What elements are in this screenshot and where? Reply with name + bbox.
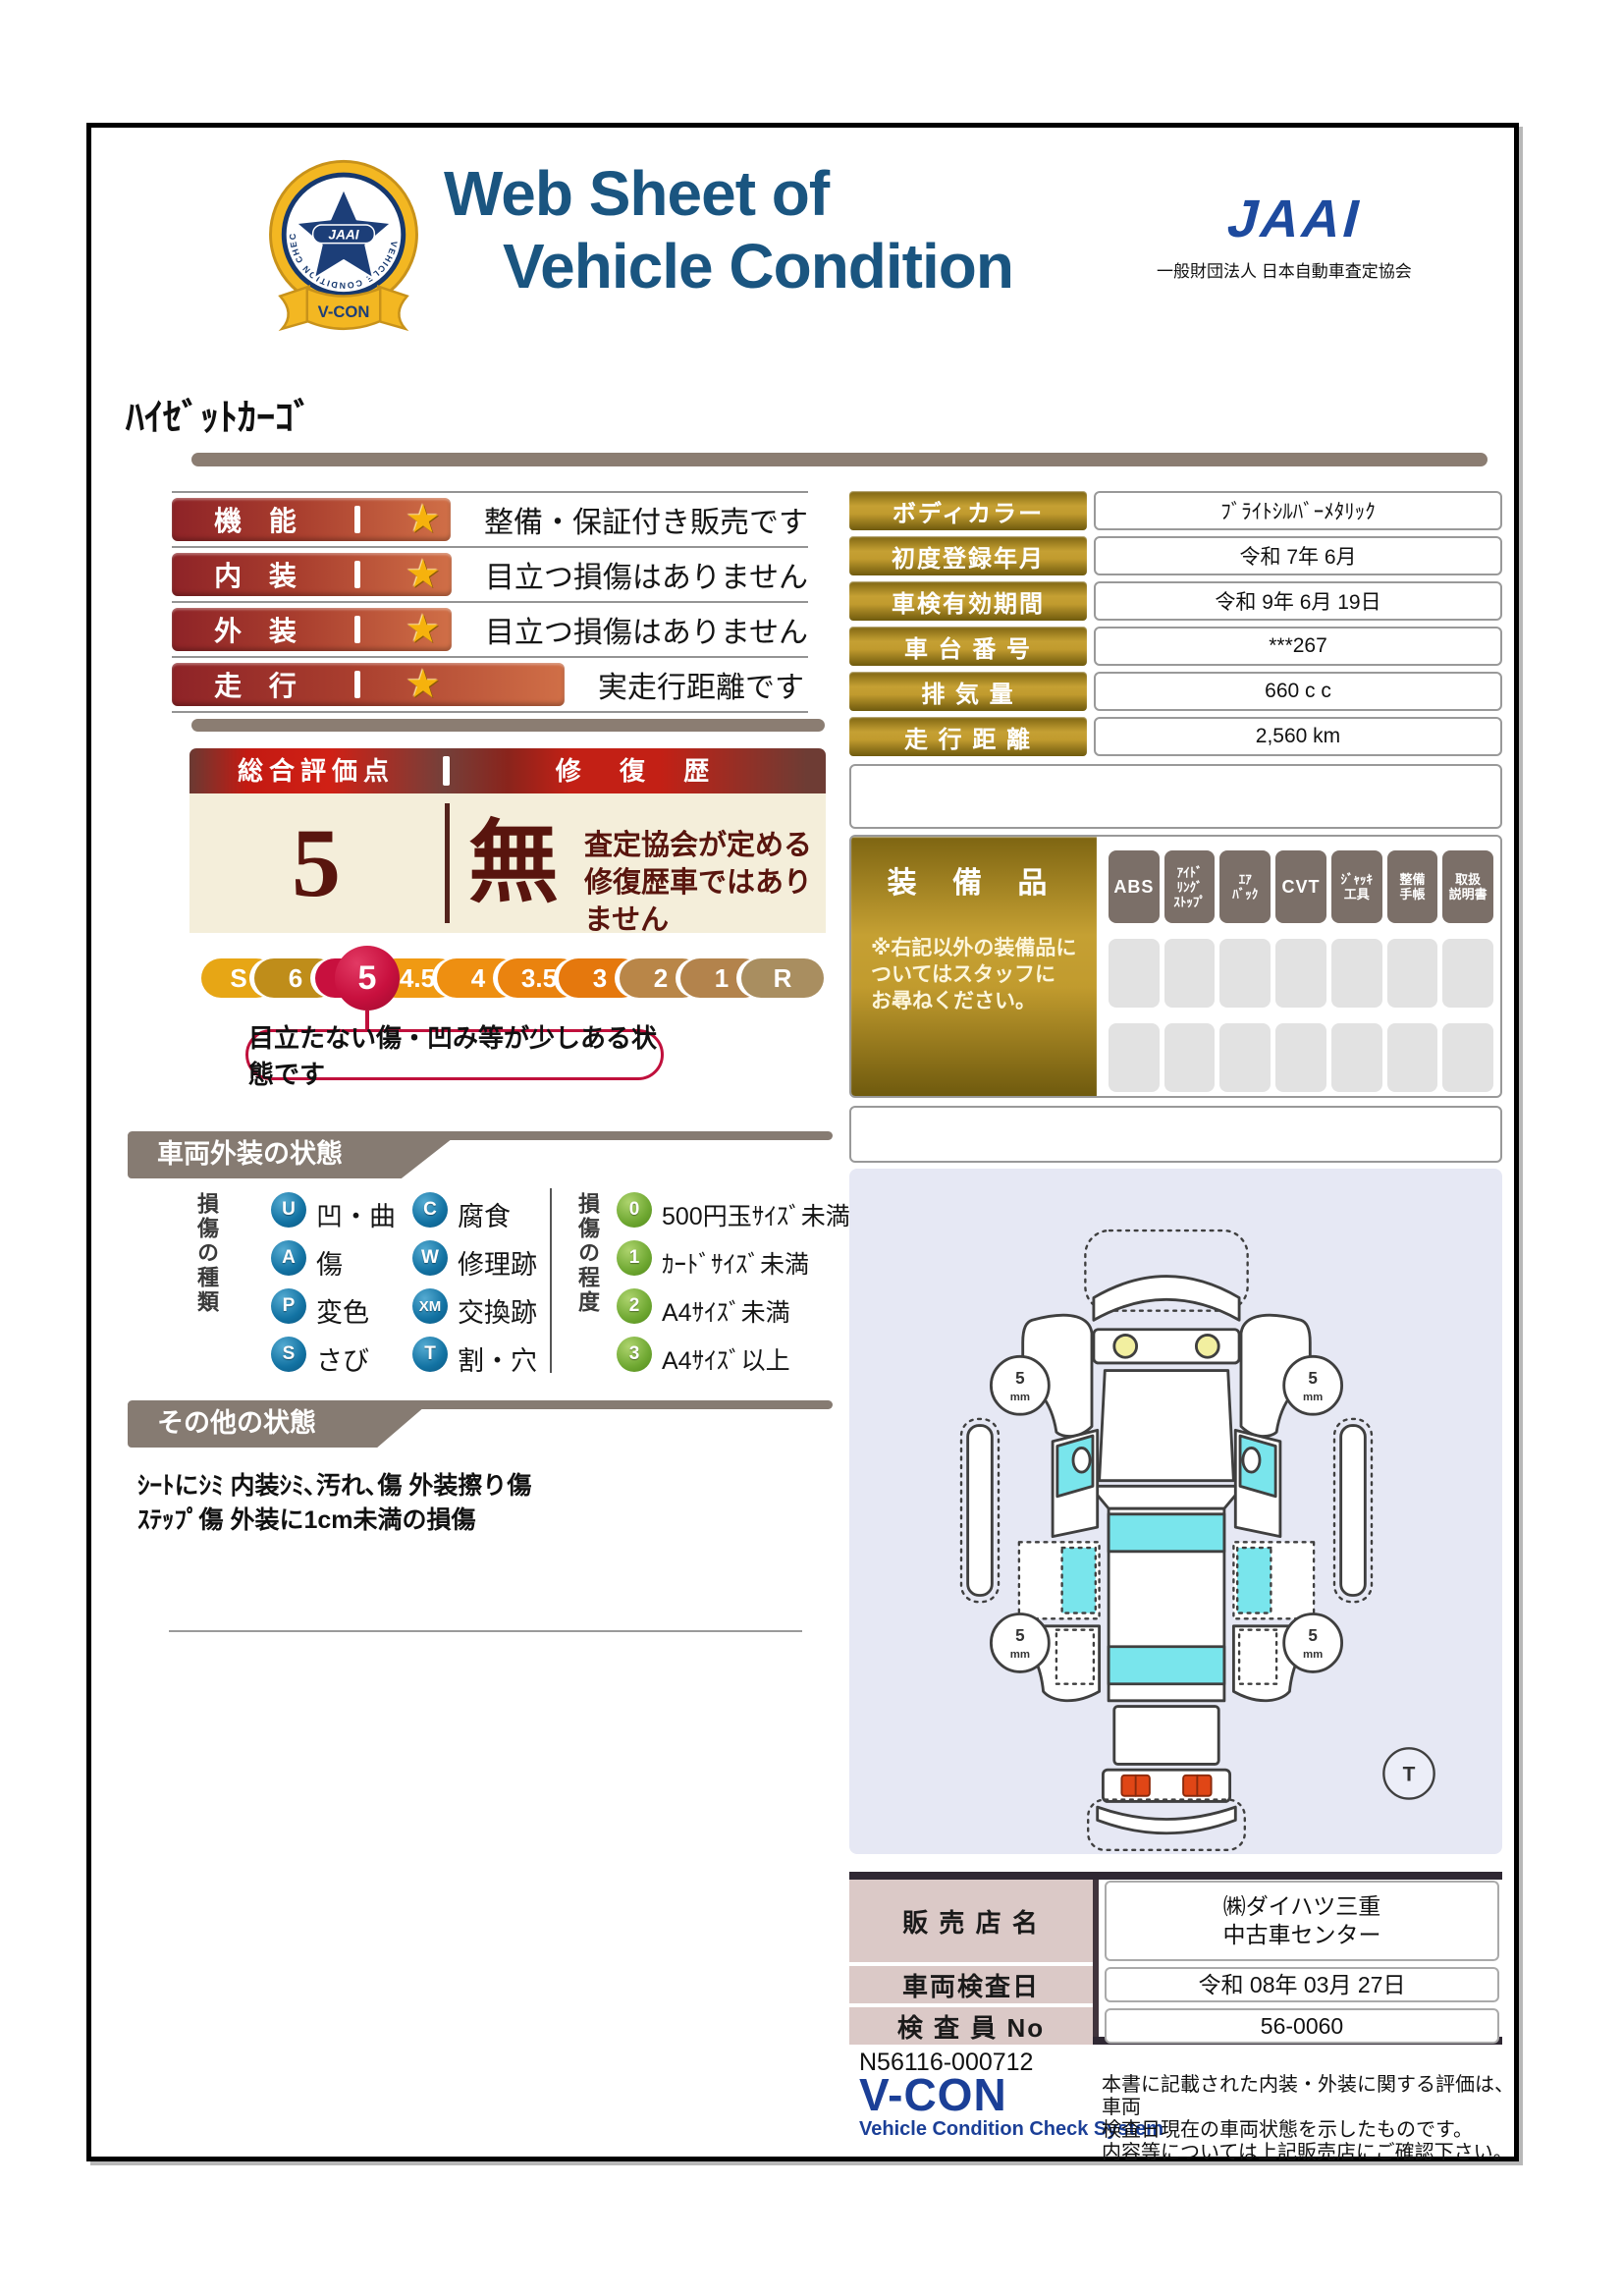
grade-scale: S 6 5 4.5 4 3.5 3 2 1 R <box>201 958 830 998</box>
dealer-label: 車両検査日 <box>849 1966 1093 2003</box>
rear-bumper <box>1098 1807 1236 1833</box>
info-row-displacement: 排 気 量 660 c c <box>849 672 1502 711</box>
info-label: 走 行 距 離 <box>849 717 1087 756</box>
info-row-first-registration: 初度登録年月 令和 7年 6月 <box>849 536 1502 575</box>
overall-score: 5 <box>189 793 443 933</box>
tire-depth-unit: mm <box>1303 1649 1323 1661</box>
degree-code-icon: 3 <box>617 1337 652 1372</box>
grade-callout: 目立たない傷・凹み等が少しある状態です <box>245 1029 664 1080</box>
tire-depth: 5 <box>1308 1626 1318 1645</box>
damage-type-name: 割・穴 <box>458 1339 537 1378</box>
damage-degree-row: 1 ｶｰﾄﾞｻｲｽﾞ未満 <box>617 1240 852 1280</box>
damage-code-icon: XM <box>412 1288 448 1324</box>
damage-code-icon: C <box>412 1192 448 1228</box>
equipment-label-panel: 装 備 品 ※右記以外の装備品に ついてはスタッフに お尋ねください。 <box>851 837 1097 1096</box>
star-icon: ★ <box>406 555 441 594</box>
rear-window-band <box>1109 1647 1224 1684</box>
rating-row-mileage: 走 行 ★ 実走行距離です <box>172 656 808 713</box>
badge-name-text: V-CON <box>318 302 370 321</box>
degree-code-icon: 0 <box>617 1192 652 1228</box>
cowl-panel <box>1090 1486 1243 1508</box>
windshield <box>1100 1371 1234 1481</box>
dealer-label: 検 査 員 No <box>849 2007 1093 2045</box>
info-value: 2,560 km <box>1094 717 1502 756</box>
separator-bar-icon <box>354 671 360 698</box>
selected-grade-marker: 5 <box>335 946 400 1011</box>
degree-code-icon: 2 <box>617 1288 652 1324</box>
rating-pill: 走 行 ★ <box>172 663 565 706</box>
damage-code-icon: W <box>412 1240 448 1276</box>
info-value: ﾌﾞﾗｲﾄｼﾙﾊﾞｰﾒﾀﾘｯｸ <box>1094 491 1502 530</box>
t-mark: T <box>1403 1764 1416 1786</box>
section-title: その他の状態 <box>128 1400 432 1448</box>
star-icon: ★ <box>406 665 441 704</box>
info-value: 令和 9年 6月 19日 <box>1094 581 1502 621</box>
equipment-badge: 整備 手帳 <box>1387 850 1438 923</box>
dealer-value: ㈱ダイハツ三重 中古車センター <box>1105 1881 1499 1961</box>
degree-name: 500円玉ｻｲｽﾞ未満 <box>662 1197 850 1232</box>
header-divider <box>443 756 450 786</box>
tire-depth-unit: mm <box>1010 1392 1030 1403</box>
equipment-badges: ABS ｱｲﾄﾞ ﾘﾝｸﾞ ｽﾄｯﾌﾟ ｴｱ ﾊﾞｯｸ CVT ｼﾞｬｯｷ 工具… <box>1109 850 1493 923</box>
badge-org-text: JAAI <box>328 228 359 243</box>
overall-header: 総合評価点 修 復 歴 <box>189 748 826 793</box>
sheet-title-line1: Web Sheet of <box>444 157 829 230</box>
info-row-mileage: 走 行 距 離 2,560 km <box>849 717 1502 756</box>
equipment-title: 装 備 品 <box>851 858 1097 902</box>
rating-comment: 目立つ損傷はありません <box>485 553 808 596</box>
divider-rule <box>191 719 825 732</box>
info-value: 令和 7年 6月 <box>1094 536 1502 575</box>
vehicle-condition-sheet: VEHICLE CONDITION CHECK SYSTEM JAAI V-CO… <box>0 0 1623 2296</box>
rear-door <box>1114 1707 1218 1765</box>
sliding-door-window <box>1062 1548 1096 1613</box>
damage-type-name: 修理跡 <box>458 1243 537 1282</box>
equipment-empty-row <box>1109 1023 1493 1092</box>
empty-box <box>849 1106 1502 1163</box>
damage-code-icon: A <box>271 1240 306 1276</box>
damage-type-name: 凹・曲 <box>316 1195 396 1233</box>
sheet-title-line2: Vehicle Condition <box>503 230 1013 302</box>
headlight-left <box>1114 1335 1137 1357</box>
dealer-value: 令和 08年 03月 27日 <box>1105 1967 1499 2002</box>
info-label: 車 台 番 号 <box>849 627 1087 666</box>
jaai-logo: JAAI <box>1221 189 1369 249</box>
divider-rule <box>191 453 1488 466</box>
info-label: 排 気 量 <box>849 672 1087 711</box>
damage-type-name: 交換跡 <box>458 1291 537 1330</box>
other-section-header: その他の状態 <box>128 1400 833 1448</box>
rating-label: 外 装 <box>172 610 349 649</box>
vehicle-name: ﾊｲｾﾞｯﾄｶｰｺﾞ <box>126 387 312 441</box>
degree-name: ｶｰﾄﾞｻｲｽﾞ未満 <box>662 1245 809 1281</box>
rating-label: 機 能 <box>172 500 349 539</box>
other-condition-notes: ｼｰﾄにｼﾐ 内装ｼﾐ､汚れ､傷 外装擦り傷 ｽﾃｯﾌﾟ傷 外装に1cm未満の損… <box>137 1469 531 1538</box>
table-divider <box>1093 1880 1099 2037</box>
vcon-badge-icon: VEHICLE CONDITION CHECK SYSTEM JAAI V-CO… <box>247 155 440 344</box>
star-icon: ★ <box>406 500 441 539</box>
damage-code-icon: T <box>412 1337 448 1372</box>
equipment-badge: ｼﾞｬｯｷ 工具 <box>1331 850 1382 923</box>
damage-type-name: 変色 <box>316 1291 369 1330</box>
repair-history-header: 修 復 歴 <box>455 748 826 793</box>
separator-bar-icon <box>354 616 360 643</box>
damage-type-row: P 変色 XM 交換跡 <box>271 1288 546 1328</box>
divider-line <box>169 1630 802 1632</box>
vcon-logo: V-CON <box>859 2068 1007 2121</box>
rating-comment: 実走行距離です <box>598 663 804 706</box>
rating-row-exterior: 外 装 ★ 目立つ損傷はありません <box>172 601 808 656</box>
equipment-empty-row <box>1109 939 1493 1008</box>
info-row-inspection-validity: 車検有効期間 令和 9年 6月 19日 <box>849 581 1502 621</box>
exterior-section-header: 車両外装の状態 <box>128 1131 833 1178</box>
dealer-row-shop: 販 売 店 名 ㈱ダイハツ三重 中古車センター <box>849 1880 1502 1962</box>
equipment-box: 装 備 品 ※右記以外の装備品に ついてはスタッフに お尋ねください。 ABS … <box>849 835 1502 1098</box>
repair-history-note: 査定協会が定める 修復歴車ではありません <box>584 827 826 939</box>
rating-label: 内 装 <box>172 555 349 594</box>
damage-type-row: A 傷 W 修理跡 <box>271 1240 546 1280</box>
table-border <box>849 1872 1502 1880</box>
tire-depth-unit: mm <box>1303 1392 1323 1403</box>
damage-type-label: 損傷の種類 <box>190 1192 222 1379</box>
dealer-row-inspector-no: 検 査 員 No 56-0060 <box>849 2007 1502 2045</box>
disclaimer-line: 検査日現在の車両状態を示したものです。 <box>1102 2119 1518 2142</box>
equipment-badge: CVT <box>1275 850 1326 923</box>
dealer-value: 56-0060 <box>1105 2008 1499 2044</box>
damage-type-name: 傷 <box>316 1243 343 1282</box>
damage-type-row: U 凹・曲 C 腐食 <box>271 1192 546 1231</box>
rating-pill: 機 能 ★ <box>172 498 451 541</box>
rating-rows: 機 能 ★ 整備・保証付き販売です 内 装 ★ 目立つ損傷はありません 外 装 … <box>172 491 808 713</box>
door-mirror <box>1073 1448 1090 1472</box>
rating-comment: 目立つ損傷はありません <box>485 608 808 651</box>
info-label: 車検有効期間 <box>849 581 1087 621</box>
info-label: ボディカラー <box>849 491 1087 530</box>
front-window-band <box>1109 1514 1224 1552</box>
legend-divider <box>550 1188 552 1373</box>
damage-type-row: S さび T 割・穴 <box>271 1337 546 1376</box>
damage-code-icon: P <box>271 1288 306 1324</box>
degree-name: A4ｻｲｽﾞ以上 <box>662 1341 790 1377</box>
repair-history-value: 無 <box>468 809 559 917</box>
rating-pill: 内 装 ★ <box>172 553 452 596</box>
damage-degree-row: 3 A4ｻｲｽﾞ以上 <box>617 1337 852 1376</box>
rating-label: 走 行 <box>172 665 349 704</box>
section-title: 車両外装の状態 <box>128 1131 461 1178</box>
info-value: 660 c c <box>1094 672 1502 711</box>
disclaimer-line: 内容等については上記販売店にご確認下さい。 <box>1102 2142 1518 2164</box>
dealer-label: 販 売 店 名 <box>849 1880 1093 1962</box>
damage-code-icon: S <box>271 1337 306 1372</box>
overall-score-header: 総合評価点 <box>189 748 443 793</box>
info-value: ***267 <box>1094 627 1502 666</box>
grade-pill: R <box>741 958 824 998</box>
overall-body: 5 無 査定協会が定める 修復歴車ではありません <box>189 793 826 933</box>
damage-degree-row: 0 500円玉ｻｲｽﾞ未満 <box>617 1192 852 1231</box>
rating-comment: 整備・保証付き販売です <box>484 498 808 541</box>
rating-row-function: 機 能 ★ 整備・保証付き販売です <box>172 491 808 546</box>
headlight-right <box>1196 1335 1218 1357</box>
empty-info-box <box>849 764 1502 829</box>
equipment-badge: ABS <box>1109 850 1160 923</box>
dealer-row-inspection-date: 車両検査日 令和 08年 03月 27日 <box>849 1966 1502 2003</box>
damage-degree-label: 損傷の程度 <box>571 1192 603 1379</box>
equipment-badge: 取扱 説明書 <box>1442 850 1493 923</box>
info-label: 初度登録年月 <box>849 536 1087 575</box>
equipment-badge: ｱｲﾄﾞ ﾘﾝｸﾞ ｽﾄｯﾌﾟ <box>1164 850 1216 923</box>
rocker-panel <box>968 1426 993 1596</box>
note-line: ｽﾃｯﾌﾟ傷 外装に1cm未満の損傷 <box>137 1503 531 1538</box>
tire-depth-unit: mm <box>1010 1649 1030 1661</box>
damage-type-name: 腐食 <box>458 1195 511 1233</box>
disclaimer: 本書に記載された内装・外装に関する評価は、車両 検査日現在の車両状態を示したもの… <box>1102 2074 1518 2164</box>
tire-depth: 5 <box>1308 1369 1318 1388</box>
equipment-note: ※右記以外の装備品に ついてはスタッフに お尋ねください。 <box>871 935 1076 1014</box>
jaai-subtitle: 一般財団法人 日本自動車査定協会 <box>1157 257 1412 282</box>
vehicle-damage-diagram: 5 mm 5 mm 5 mm 5 mm T <box>849 1169 1502 1854</box>
star-icon: ★ <box>406 610 441 649</box>
tire-depth: 5 <box>1015 1626 1025 1645</box>
degree-name: A4ｻｲｽﾞ未満 <box>662 1293 790 1329</box>
equipment-badge: ｴｱ ﾊﾞｯｸ <box>1219 850 1271 923</box>
disclaimer-line: 本書に記載された内装・外装に関する評価は、車両 <box>1102 2074 1518 2119</box>
body-divider <box>445 803 450 923</box>
dealer-table: 販 売 店 名 ㈱ダイハツ三重 中古車センター 車両検査日 令和 08年 03月… <box>849 1872 1502 2045</box>
damage-code-icon: U <box>271 1192 306 1228</box>
rating-pill: 外 装 ★ <box>172 608 452 651</box>
note-line: ｼｰﾄにｼﾐ 内装ｼﾐ､汚れ､傷 外装擦り傷 <box>137 1469 531 1503</box>
separator-bar-icon <box>354 506 360 533</box>
damage-degree-row: 2 A4ｻｲｽﾞ未満 <box>617 1288 852 1328</box>
degree-code-icon: 1 <box>617 1240 652 1276</box>
rating-row-interior: 内 装 ★ 目立つ損傷はありません <box>172 546 808 601</box>
info-row-chassis-number: 車 台 番 号 ***267 <box>849 627 1502 666</box>
overall-evaluation: 総合評価点 修 復 歴 5 無 査定協会が定める 修復歴車ではありません <box>189 748 826 933</box>
separator-bar-icon <box>354 561 360 588</box>
info-row-body-color: ボディカラー ﾌﾞﾗｲﾄｼﾙﾊﾞｰﾒﾀﾘｯｸ <box>849 491 1502 530</box>
damage-type-name: さび <box>316 1339 369 1378</box>
tire-depth: 5 <box>1015 1369 1025 1388</box>
front-bumper <box>1094 1277 1239 1321</box>
